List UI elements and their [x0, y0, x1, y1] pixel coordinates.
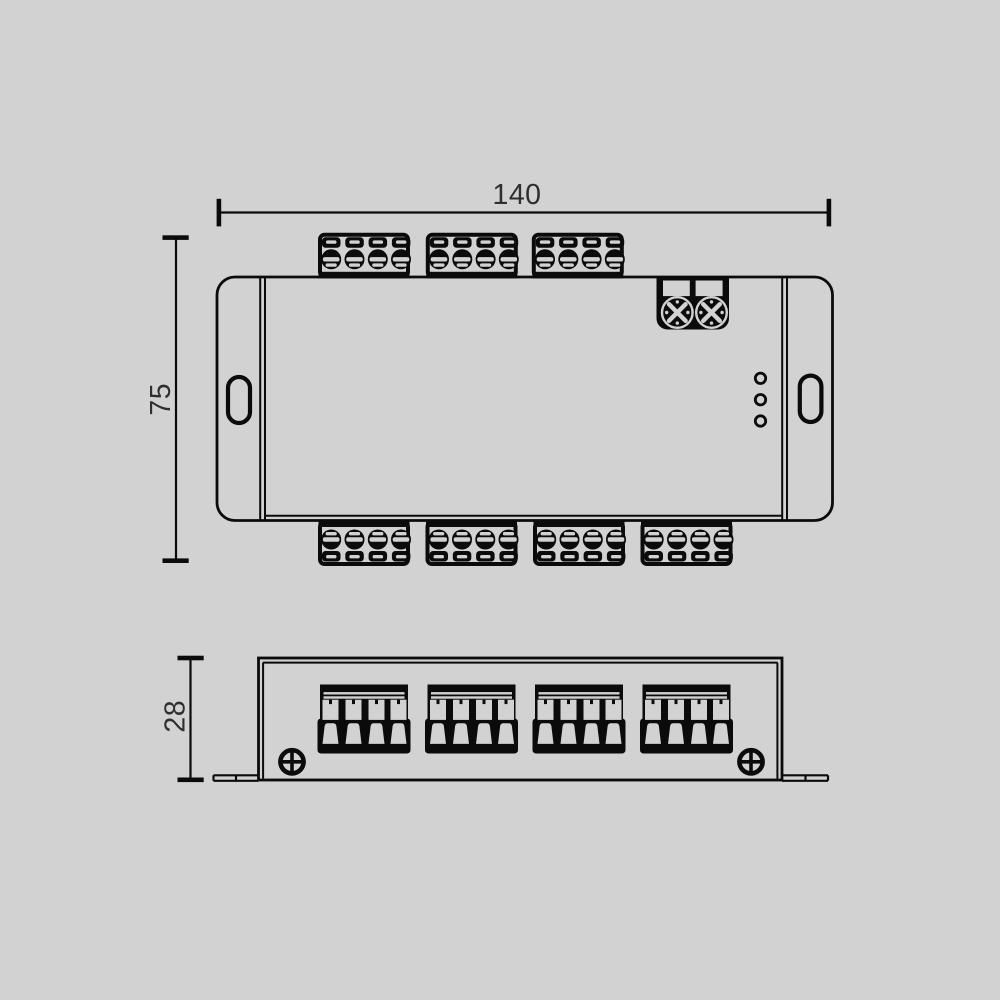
dimension-height-tick-bottom: [163, 558, 189, 563]
led-indicators: [755, 373, 765, 426]
dimension-depth-tick-bottom: [178, 778, 204, 783]
dimension-depth-label: 28: [160, 700, 192, 733]
power-screw-terminal: [657, 277, 730, 330]
front-view: [214, 658, 829, 781]
dimension-width-tick-left: [217, 199, 222, 227]
phillips-screw-icon: [662, 297, 693, 328]
wire-connector-3: [533, 685, 626, 754]
dimension-height-tick-top: [163, 235, 189, 240]
wire-connector-2: [425, 685, 518, 754]
terminal-block-bottom-1: [319, 521, 412, 565]
mounting-screw-right: [739, 750, 762, 773]
terminal-block-top-2: [426, 235, 519, 278]
dimension-width-tick-right: [827, 199, 832, 227]
wire-connector-1: [318, 685, 411, 754]
terminal-block-top-1: [319, 235, 412, 278]
dimension-depth-tick-top: [178, 656, 204, 661]
phillips-screw-icon: [696, 297, 727, 328]
dimension-width-label: 140: [492, 179, 541, 211]
technical-drawing: 140 75: [0, 0, 1000, 1000]
terminal-block-bottom-4: [641, 521, 734, 565]
dimension-height-label: 75: [145, 383, 177, 416]
terminal-block-bottom-2: [426, 521, 519, 565]
page-background: { "meta": { "drawing_type": "technical d…: [0, 0, 1000, 1000]
mounting-screw-left: [280, 750, 303, 773]
terminal-block-top-3: [532, 235, 625, 278]
terminal-block-bottom-3: [534, 521, 627, 565]
top-view: [217, 235, 833, 564]
wire-connector-4: [640, 685, 733, 754]
led-indicator-2: [755, 395, 765, 405]
led-indicator-3: [755, 416, 765, 426]
led-indicator-1: [755, 373, 765, 383]
device-body-top-view: [217, 277, 833, 521]
